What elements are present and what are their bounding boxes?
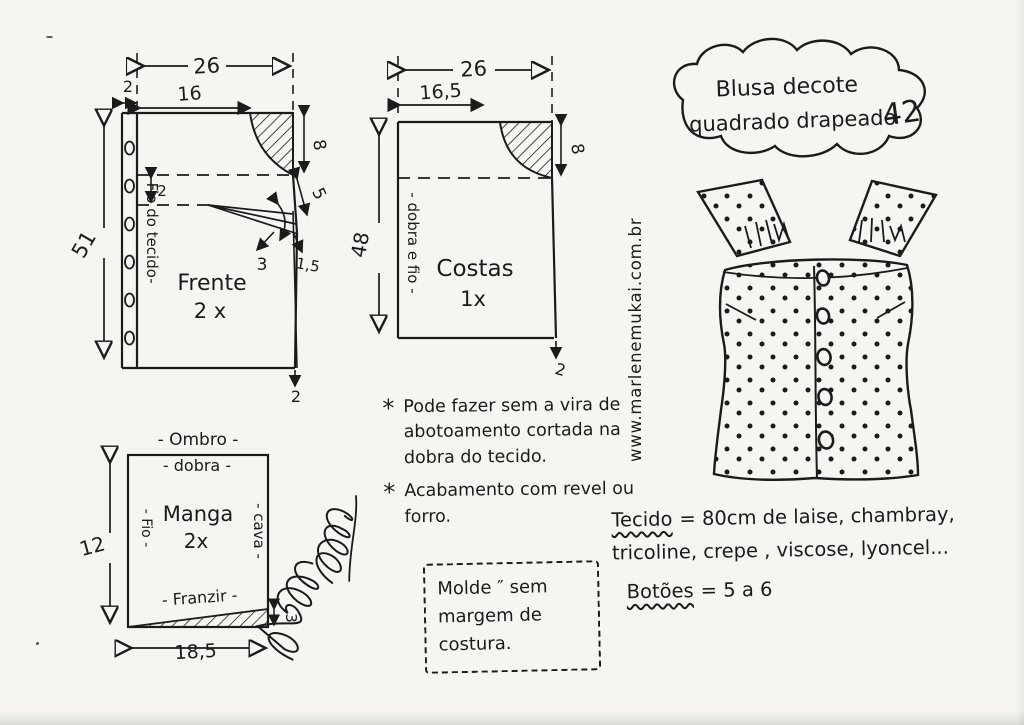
- costas-label-1: Costas: [436, 256, 513, 282]
- manga-shoulder-label: - Ombro -: [158, 430, 239, 450]
- molde-line: costura.: [438, 628, 591, 659]
- frente-dart-offset: 1,5: [295, 254, 322, 276]
- buttons-text: = 5 a 6: [700, 578, 772, 602]
- frente-dart-width: 3: [257, 255, 268, 275]
- blouse-illustration: [653, 168, 1008, 508]
- scan-speck: [36, 642, 39, 645]
- fabric-text-2: tricoline, crepe , viscose, lyoncel...: [612, 530, 1021, 570]
- no-seam-allowance-note: Molde ″ sem margem de costura.: [423, 560, 601, 673]
- frente-neck-slant: 5: [307, 185, 330, 203]
- scan-speck: [46, 36, 53, 38]
- cloud-size: 42: [880, 94, 923, 134]
- frente-grain-label: - Fio do tecido-: [143, 172, 161, 283]
- website-url: www.marlenemukai.com.br: [626, 172, 645, 462]
- frente-neck-depth: 8: [308, 138, 330, 152]
- frente-piece-diagram: 26 16 2 51 8 5 2 3 1,5 2 - Fio do tecido…: [50, 28, 365, 410]
- costas-label-2: 1x: [460, 287, 486, 311]
- note-item: * Acabamento com revel ou forro.: [383, 477, 646, 530]
- pattern-sheet: 26 16 2 51 8 5 2 3 1,5 2 - Fio do tecido…: [0, 0, 1024, 725]
- manga-label-1: Manga: [163, 502, 234, 526]
- manga-armhole-label: - cava -: [250, 503, 268, 559]
- manga-width: 18,5: [174, 640, 217, 664]
- fabric-text-1: = 80cm de laise, chambray,: [679, 503, 955, 531]
- cloud-title-line1: Blusa decote: [715, 73, 858, 103]
- costas-width-total: 26: [460, 56, 488, 81]
- manga-grain-label: - Fio -: [138, 509, 154, 548]
- asterisk-bullet: *: [382, 395, 395, 471]
- materials-block: Tecido= 80cm de laise, chambray, tricoli…: [611, 496, 1021, 609]
- frente-band-width: 2: [123, 77, 133, 96]
- frente-hem-drop: 2: [291, 387, 301, 406]
- costas-neck-depth: 8: [566, 142, 588, 156]
- frente-width-total: 26: [193, 53, 221, 78]
- frente-buttonholes: [125, 142, 134, 345]
- manga-fold-label: - dobra -: [163, 456, 231, 475]
- frente-label-2: 2 x: [194, 299, 226, 323]
- costas-height: 48: [346, 230, 374, 259]
- molde-line: Molde ″ sem: [437, 572, 590, 603]
- buttons-line: Botões= 5 a 6: [626, 569, 1021, 609]
- manga-gather-label: - Franzir -: [161, 585, 238, 609]
- molde-line: margem de: [438, 600, 591, 631]
- costas-width-top: 16,5: [419, 80, 463, 105]
- frente-outline: [104, 53, 307, 386]
- note-text: Acabamento com revel ou forro.: [404, 477, 646, 530]
- frente-label-1: Frente: [177, 271, 246, 296]
- notes-block: * Pode fazer sem a vira de abotoamento c…: [382, 393, 645, 539]
- costas-piece-diagram: 26 16,5 48 8 - dobra e fio - 2 Costas 1x: [353, 28, 593, 388]
- costas-fold-label: - dobra e fio -: [404, 192, 422, 293]
- frente-height: 51: [67, 227, 101, 262]
- manga-height: 12: [77, 531, 108, 561]
- blouse-right-strap: [850, 181, 936, 256]
- manga-label-2: 2x: [184, 529, 209, 553]
- blouse-left-strap: [698, 180, 790, 256]
- frente-width-top: 16: [177, 82, 203, 106]
- asterisk-bullet: *: [383, 479, 396, 530]
- title-cloud: Blusa decote quadrado drapeado 42: [645, 28, 950, 168]
- costas-hem-drop: 2: [553, 359, 568, 380]
- buttons-label: Botões: [626, 579, 693, 603]
- note-text: Pode fazer sem a vira de abotoamento cor…: [403, 393, 645, 472]
- note-item: * Pode fazer sem a vira de abotoamento c…: [382, 393, 645, 472]
- fabric-label: Tecido: [611, 508, 672, 532]
